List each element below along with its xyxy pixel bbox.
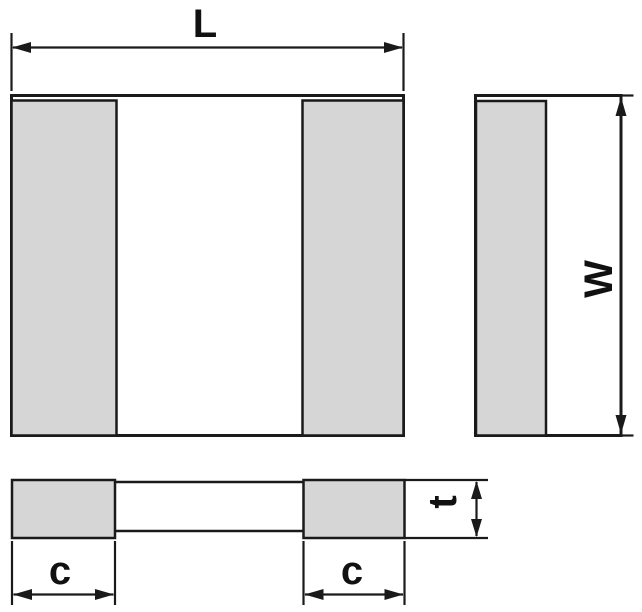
dim-L-arrowhead-left bbox=[12, 42, 31, 53]
dim-c-left-label: c bbox=[49, 549, 71, 593]
diagram-canvas: L W t bbox=[0, 0, 642, 612]
dim-c-right-arrowhead-left bbox=[305, 589, 324, 600]
dim-t-arrowhead-bottom bbox=[471, 519, 482, 537]
dim-c-left-arrowhead-right bbox=[95, 589, 114, 600]
dimension-c-right: c bbox=[304, 541, 405, 605]
dim-c-right-arrowhead-right bbox=[385, 589, 404, 600]
dimension-t: t bbox=[405, 480, 488, 538]
dim-W-label: W bbox=[577, 260, 621, 298]
dim-t-label: t bbox=[421, 495, 465, 508]
dim-c-right-label: c bbox=[341, 549, 363, 593]
bottom-view-left-termination bbox=[12, 480, 115, 538]
side-view-termination bbox=[476, 101, 546, 436]
dim-c-left-arrowhead-left bbox=[13, 589, 32, 600]
top-view-left-termination bbox=[12, 101, 117, 436]
bottom-view-right-termination bbox=[304, 480, 405, 538]
top-view bbox=[12, 96, 404, 436]
dim-L-label: L bbox=[193, 2, 217, 46]
dimension-c-left: c bbox=[12, 541, 115, 605]
bottom-view bbox=[12, 480, 405, 538]
dim-L-arrowhead-right bbox=[384, 42, 403, 53]
top-view-right-termination bbox=[303, 101, 404, 436]
side-view: W bbox=[476, 96, 634, 436]
component-dimension-drawing: L W t bbox=[0, 0, 642, 612]
dim-t-arrowhead-top bbox=[471, 481, 482, 499]
dimension-L: L bbox=[12, 2, 404, 91]
